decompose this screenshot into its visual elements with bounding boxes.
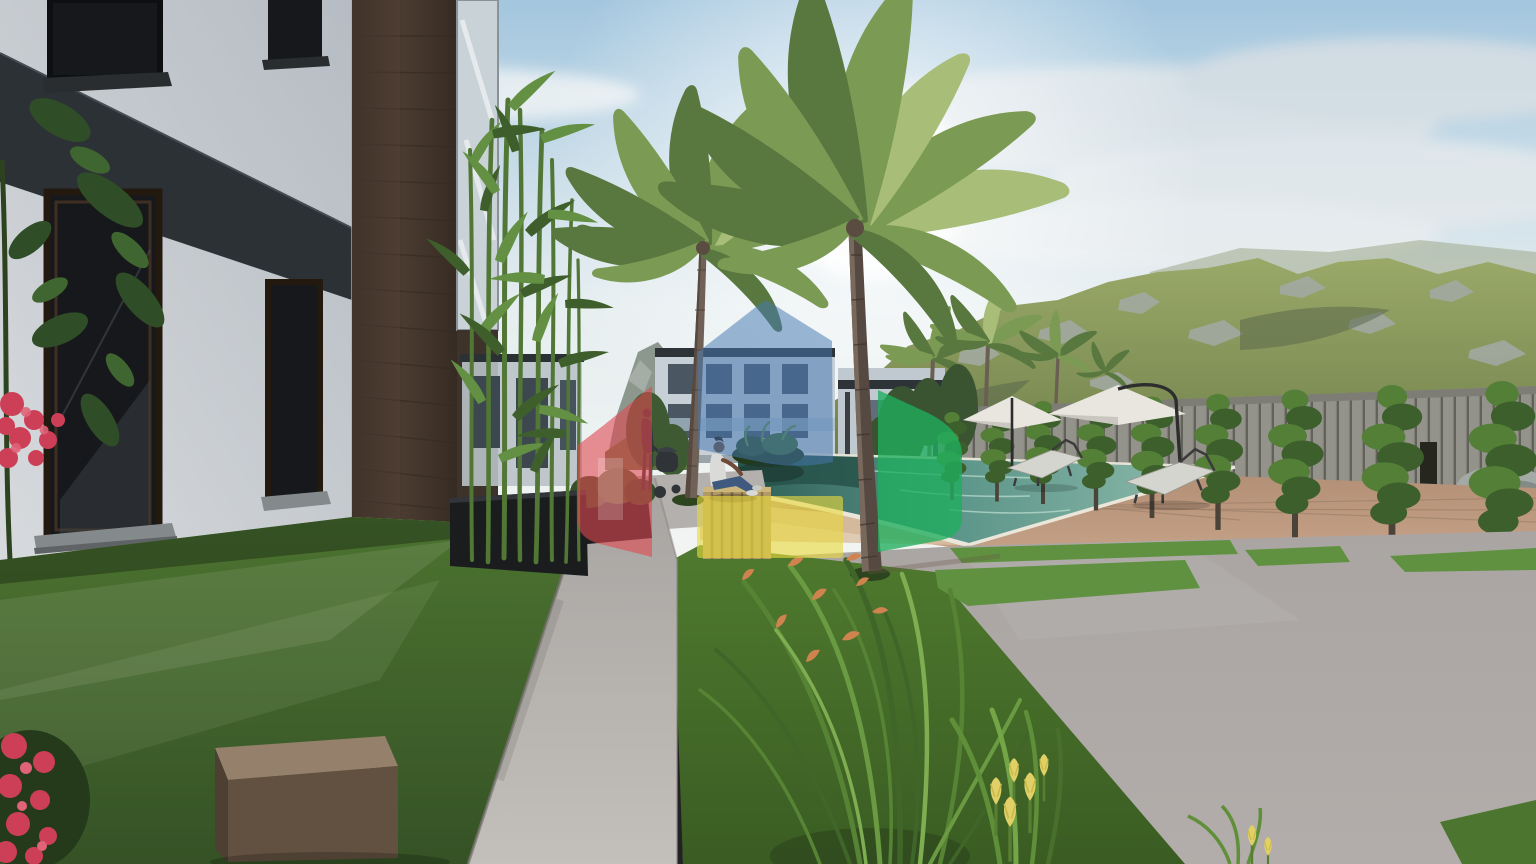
window-upper-left: [42, 0, 172, 93]
watermark-yellow-block: [697, 496, 843, 558]
watermark-red-door: [598, 458, 623, 520]
window-lower-left: [34, 192, 177, 554]
window-upper-right: [262, 0, 330, 70]
render-image: [0, 0, 1536, 864]
architectural-render: [0, 0, 1536, 864]
main-building: [0, 0, 498, 560]
wood-clad-column: [352, 0, 457, 522]
window-lower-right: [261, 282, 331, 511]
